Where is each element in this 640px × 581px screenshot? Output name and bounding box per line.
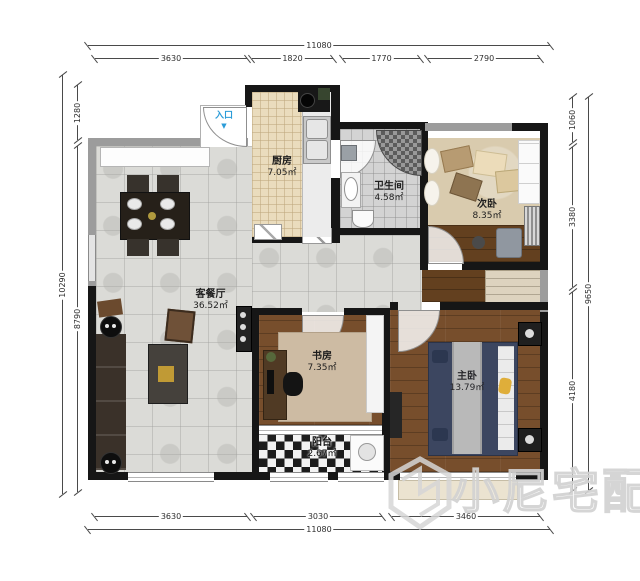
- dim-bottom-total-label: 11080: [304, 526, 333, 534]
- dim-top-seg-3: 1770: [343, 58, 420, 59]
- bathroom-label: 卫生间 4.58㎡: [350, 180, 428, 205]
- pouf-top: [100, 316, 122, 338]
- living-label: 客餐厅 36.52㎡: [163, 288, 258, 313]
- dim-left-outer: 10290: [62, 75, 63, 494]
- master-area: 13.79㎡: [412, 383, 522, 395]
- bed2-stool: [472, 236, 485, 249]
- bedroom2-area: 8.35㎡: [432, 211, 542, 223]
- table-centerpiece: [148, 212, 156, 220]
- speaker-cone-2: [240, 324, 246, 330]
- dim-bottom-seg-2: 3030: [254, 516, 382, 517]
- bed-runner: [452, 342, 482, 454]
- study-name: 书房: [272, 350, 372, 363]
- dim-left-outer-label: 10290: [59, 270, 67, 299]
- armchair: [97, 298, 123, 317]
- dim-right-seg-1-label: 1060: [569, 107, 577, 131]
- balcony-name: 阳台: [272, 436, 372, 449]
- bathroom-name: 卫生间: [350, 180, 428, 193]
- left-wall-lower: [88, 286, 96, 480]
- dim-left-seg-1-label: 1280: [74, 100, 82, 124]
- kitchen-area: 7.05㎡: [252, 168, 312, 180]
- master-entry-floor: [422, 270, 485, 302]
- dim-top-seg-2: 1820: [252, 58, 333, 59]
- dim-top-seg-4-label: 2790: [472, 55, 496, 63]
- hallway-floor: [252, 235, 422, 312]
- living-bottom-window: [128, 472, 214, 482]
- dim-right-outer: 9650: [588, 97, 589, 490]
- shoe-cabinet: [100, 147, 210, 167]
- dim-top-seg-4: 2790: [428, 58, 540, 59]
- plate-4: [160, 218, 175, 230]
- bay-window-ledge: [398, 480, 518, 500]
- dim-bottom-seg-1-label: 3630: [159, 513, 183, 521]
- tv-cabinet-gold-accent: [158, 366, 174, 382]
- study-living-wall: [252, 308, 259, 472]
- speaker-cone-1: [240, 312, 246, 318]
- rice-cooker: [300, 93, 315, 108]
- dim-right-seg-2-label: 3380: [569, 205, 577, 229]
- study-chair: [283, 372, 303, 396]
- left-window: [88, 235, 96, 281]
- bottom-wall-d: [384, 472, 400, 480]
- dim-right-seg-1: 1060: [572, 97, 573, 142]
- kitchen-fridge: [254, 224, 282, 240]
- master-label: 主卧 13.79㎡: [412, 370, 522, 395]
- dim-right-seg-3: 4180: [572, 292, 573, 490]
- hall-wardrobe: [485, 270, 542, 304]
- plate-3: [127, 218, 142, 230]
- study-area: 7.35㎡: [272, 363, 372, 375]
- pouf-bottom: [100, 452, 122, 474]
- dim-top-seg-1: 3630: [95, 58, 247, 59]
- dim-bottom-seg-1: 3630: [95, 516, 247, 517]
- study-label: 书房 7.35㎡: [272, 350, 372, 375]
- dim-left-seg-2: 8790: [77, 146, 78, 492]
- navy-cushion-2: [432, 428, 448, 441]
- dining-chair-2: [157, 175, 179, 192]
- bottom-wall-e: [516, 472, 548, 480]
- bathroom-area: 4.58㎡: [350, 193, 428, 205]
- balcony-window-2: [338, 472, 384, 482]
- bathroom-cabinet: [341, 145, 357, 161]
- toilet: [352, 210, 374, 228]
- entrance-arrow-icon: ▼: [221, 122, 226, 130]
- master-tv-console: [390, 392, 402, 438]
- floorplan-canvas: 入口 ▼: [0, 0, 640, 581]
- navy-cushion-1: [432, 350, 448, 363]
- master-pillows: [498, 346, 514, 450]
- study-top-wall-a: [259, 308, 302, 315]
- dining-chair-4: [157, 239, 179, 256]
- bedroom2-label: 次卧 8.35㎡: [432, 198, 542, 223]
- bedroom2-name: 次卧: [432, 198, 542, 211]
- bedroom2-bottom-wall-b: [462, 262, 548, 270]
- bed2-pillow-oval-1: [424, 148, 440, 174]
- speaker-cone-3: [240, 336, 246, 342]
- master-name: 主卧: [412, 370, 522, 383]
- dining-chair-3: [127, 239, 149, 256]
- dim-right-seg-2: 3380: [572, 147, 573, 287]
- kitchen-name: 厨房: [252, 155, 312, 168]
- sofa: [96, 334, 126, 470]
- bedroom2-top-window-wall: [425, 123, 512, 131]
- nightstand-bottom: [518, 428, 542, 452]
- dim-top-total: 11080: [88, 45, 550, 46]
- master-top-wall-b: [440, 302, 548, 310]
- living-name: 客餐厅: [163, 288, 258, 301]
- balcony-window-1: [270, 472, 328, 482]
- bathroom-door-opening: [330, 140, 340, 178]
- dining-chair-1: [127, 175, 149, 192]
- bottom-wall-c: [328, 472, 338, 480]
- entrance-label: 入口 ▼: [203, 112, 245, 132]
- dim-top-total-label: 11080: [304, 42, 333, 50]
- balcony-sliding-door: [259, 425, 382, 435]
- bathroom-bottom-wall: [332, 228, 422, 235]
- bed2-closet: [518, 140, 540, 204]
- bedroom2-bottom-wall-a: [420, 262, 428, 270]
- balcony-area: 2.67㎡: [272, 449, 372, 461]
- living-area: 36.52㎡: [163, 301, 258, 313]
- sink-basin-1: [306, 119, 328, 139]
- dim-top-seg-3-label: 1770: [369, 55, 393, 63]
- dim-bottom-seg-2-label: 3030: [306, 513, 330, 521]
- study-top-wall-b: [344, 308, 390, 315]
- dim-bottom-total: 11080: [88, 529, 550, 530]
- dim-bottom-seg-3: 3460: [392, 516, 540, 517]
- dim-top-seg-1-label: 3630: [159, 55, 183, 63]
- kitchen-label: 厨房 7.05㎡: [252, 155, 312, 180]
- dim-left-seg-1: 1280: [77, 85, 78, 140]
- bathroom-top-wall: [340, 122, 425, 129]
- nightstand-top: [518, 322, 542, 346]
- dim-top-seg-2-label: 1820: [280, 55, 304, 63]
- kitchen-left-wall: [245, 85, 252, 107]
- plate-1: [127, 198, 142, 210]
- dim-right-seg-3-label: 4180: [569, 379, 577, 403]
- balcony-label: 阳台 2.67㎡: [272, 436, 372, 461]
- plate-2: [160, 198, 175, 210]
- bed2-chair: [496, 228, 522, 258]
- right-wall-upper: [540, 123, 548, 270]
- entrance-text: 入口: [215, 111, 233, 121]
- living-rug: [164, 309, 195, 344]
- bottom-wall-b: [214, 472, 270, 480]
- dim-bottom-seg-3-label: 3460: [454, 513, 478, 521]
- dim-left-seg-2-label: 8790: [74, 307, 82, 331]
- kitchen-plant-box: [318, 88, 330, 100]
- dim-right-outer-label: 9650: [585, 281, 593, 305]
- master-top-wall-a: [390, 302, 398, 310]
